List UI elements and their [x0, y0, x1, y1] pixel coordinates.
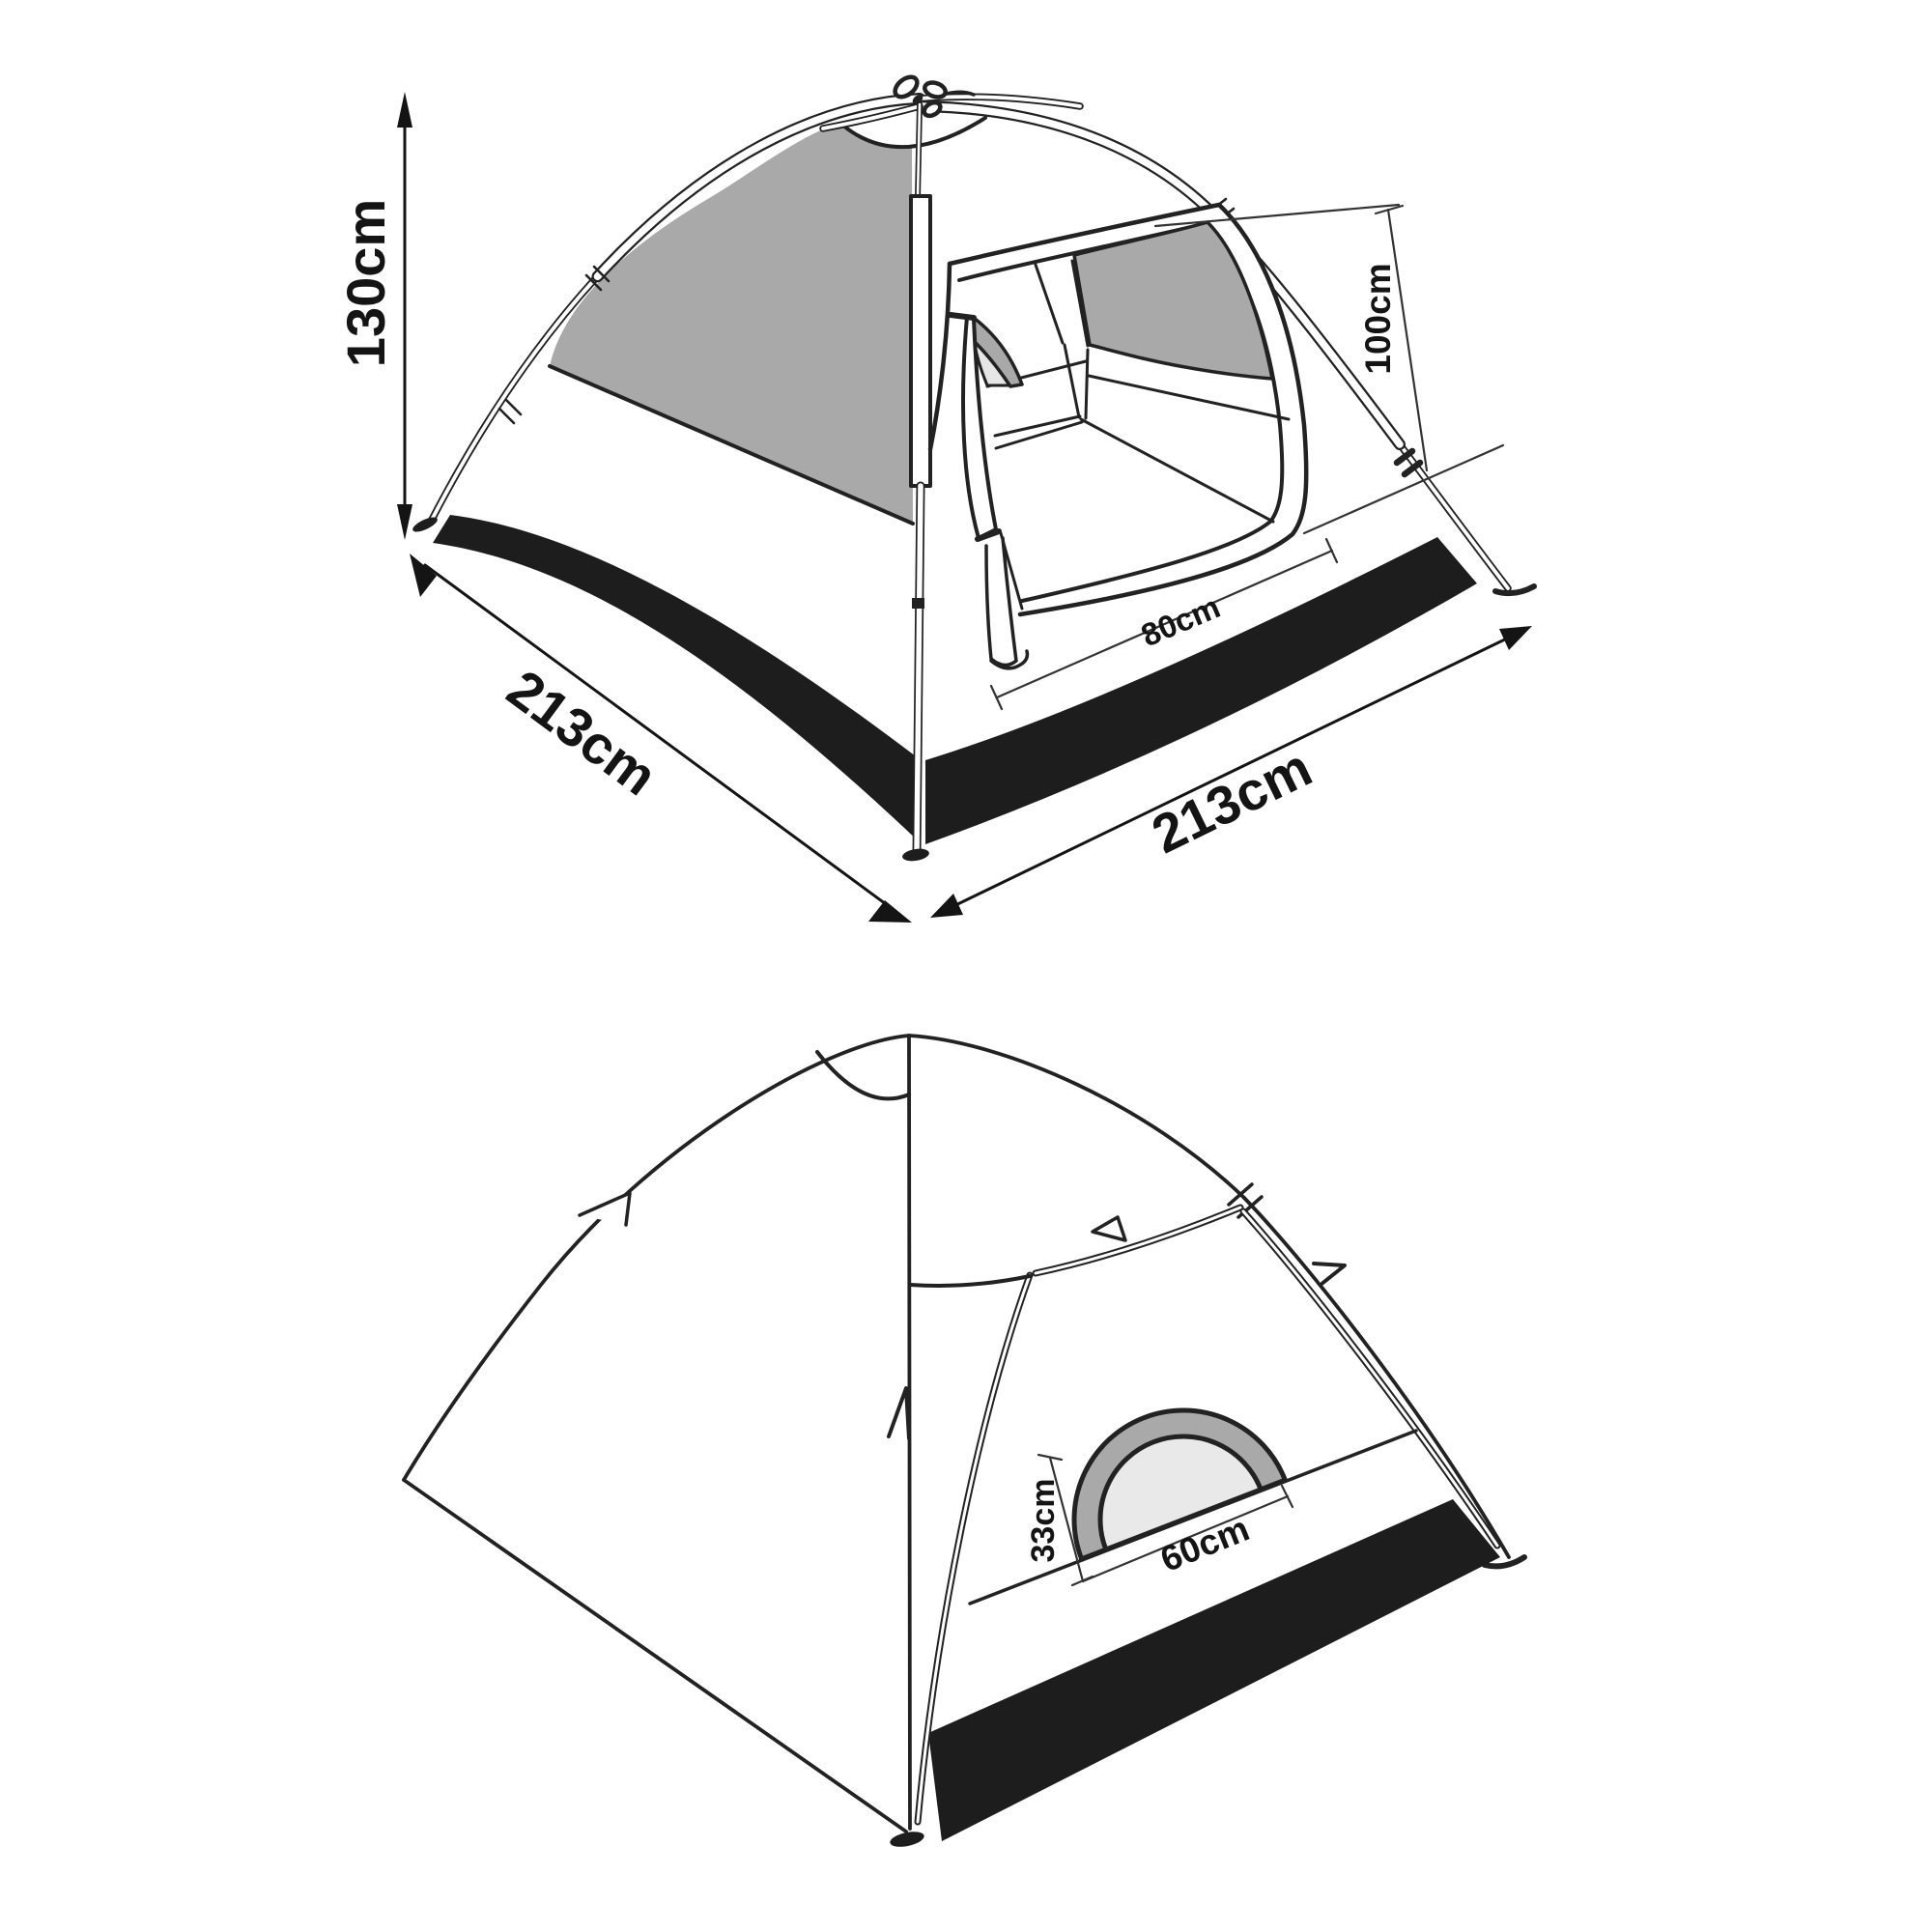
svg-text:130cm: 130cm: [335, 199, 396, 367]
svg-text:100cm: 100cm: [1358, 263, 1398, 374]
svg-text:33cm: 33cm: [1025, 1479, 1062, 1563]
